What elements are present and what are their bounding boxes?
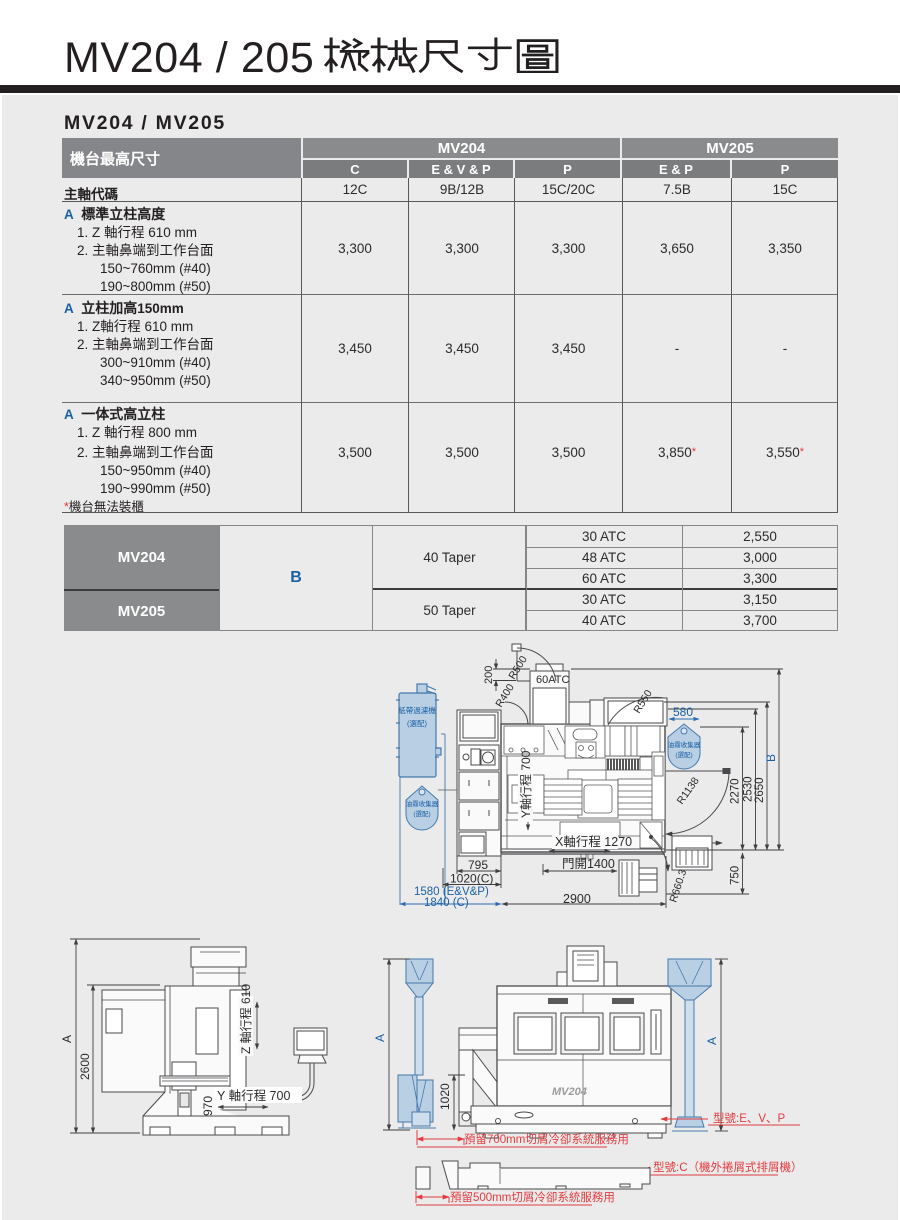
svg-text:MV204: MV204: [552, 1086, 587, 1098]
svg-text:R500: R500: [506, 654, 530, 682]
svg-text:(選配): (選配): [407, 718, 427, 728]
svg-text:R400: R400: [493, 682, 517, 710]
svg-text:2650: 2650: [754, 777, 766, 803]
svg-text:預留500mm切屑冷卻系統服務用: 預留500mm切屑冷卻系統服務用: [450, 1190, 615, 1204]
svg-text:油霧收集器: 油霧收集器: [406, 799, 439, 808]
svg-text:R660.3: R660.3: [667, 868, 689, 904]
svg-text:Y 軸行程 700: Y 軸行程 700: [217, 1088, 290, 1103]
svg-text:Z 軸行程 610: Z 軸行程 610: [238, 984, 253, 1054]
svg-text:型號:C（機外捲屑式排屑機）: 型號:C（機外捲屑式排屑機）: [653, 1160, 803, 1174]
svg-text:(選配): (選配): [413, 809, 430, 818]
svg-text:A: A: [373, 1034, 387, 1042]
svg-text:970: 970: [201, 1096, 215, 1116]
svg-text:2530: 2530: [743, 776, 755, 802]
svg-text:油霧收集器: 油霧收集器: [668, 740, 701, 749]
svg-text:795: 795: [468, 858, 488, 872]
svg-text:預留700mm切屑冷卻系統服務用: 預留700mm切屑冷卻系統服務用: [464, 1132, 629, 1146]
svg-text:型號:E、V、P: 型號:E、V、P: [713, 1111, 786, 1125]
svg-text:60ATC: 60ATC: [536, 674, 569, 686]
svg-text:門開1400: 門開1400: [562, 857, 615, 871]
svg-text:B: B: [764, 754, 778, 762]
svg-text:Y軸行程 700: Y軸行程 700: [518, 750, 533, 818]
svg-text:紙帶過濾機: 紙帶過濾機: [398, 705, 436, 715]
svg-text:750: 750: [730, 866, 742, 885]
svg-text:580: 580: [673, 705, 693, 719]
svg-text:X軸行程 1270: X軸行程 1270: [555, 834, 632, 849]
svg-text:200: 200: [483, 666, 495, 684]
svg-text:2600: 2600: [78, 1053, 92, 1080]
svg-text:1020(C): 1020(C): [450, 872, 493, 886]
svg-text:R1138: R1138: [675, 775, 702, 807]
svg-text:2900: 2900: [563, 892, 591, 906]
svg-text:A: A: [60, 1035, 74, 1043]
svg-text:2270: 2270: [730, 778, 742, 804]
svg-text:A: A: [705, 1037, 719, 1045]
svg-text:(選配): (選配): [675, 750, 692, 759]
svg-text:1840 (C): 1840 (C): [424, 897, 469, 909]
svg-text:1020: 1020: [438, 1083, 452, 1110]
